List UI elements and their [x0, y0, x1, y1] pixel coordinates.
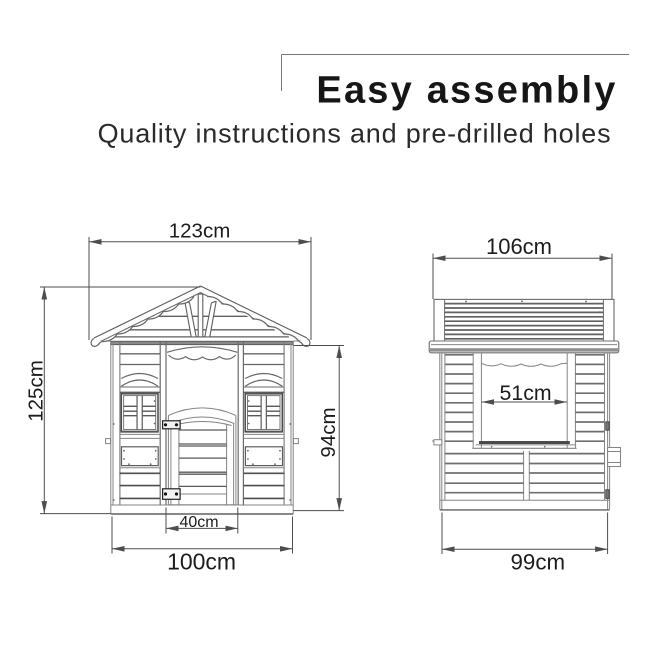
svg-text:106cm: 106cm	[486, 234, 552, 259]
svg-text:94cm: 94cm	[317, 407, 340, 457]
svg-text:100cm: 100cm	[167, 548, 236, 574]
svg-text:Quality instructions and pre-d: Quality instructions and pre-drilled hol…	[98, 119, 612, 149]
svg-text:99cm: 99cm	[511, 550, 566, 575]
svg-text:Easy assembly: Easy assembly	[316, 70, 617, 112]
svg-text:125cm: 125cm	[25, 360, 48, 422]
svg-text:40cm: 40cm	[179, 514, 218, 531]
svg-text:51cm: 51cm	[500, 381, 552, 405]
svg-text:123cm: 123cm	[169, 219, 231, 242]
